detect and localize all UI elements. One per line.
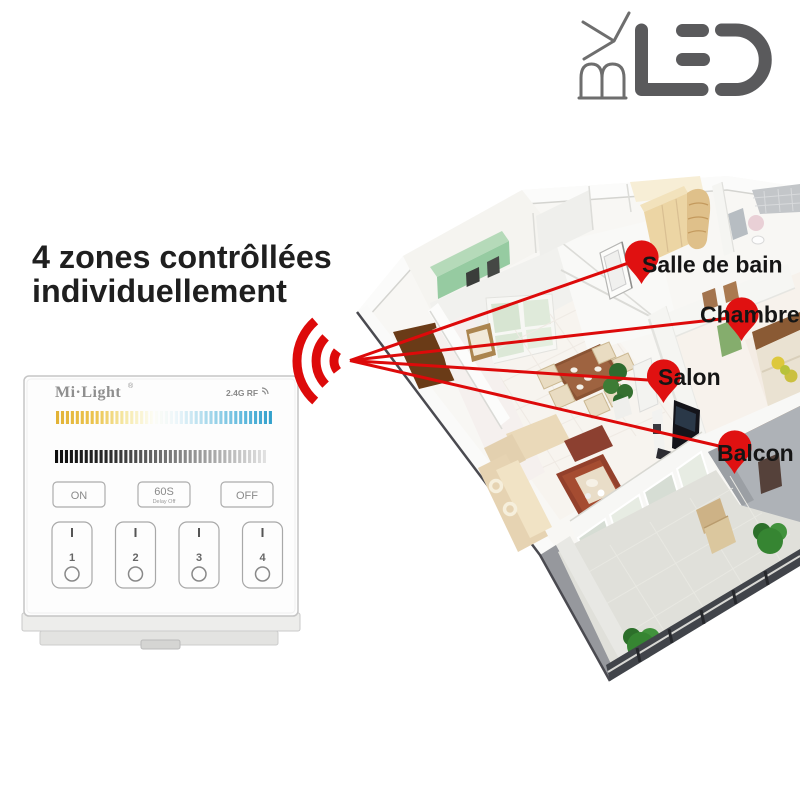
svg-text:4: 4 <box>259 552 266 564</box>
svg-text:ON: ON <box>71 490 88 502</box>
svg-text:Salle de bain: Salle de bain <box>642 252 783 278</box>
svg-text:1: 1 <box>69 552 75 564</box>
svg-text:2: 2 <box>132 552 138 564</box>
svg-text:Delay Off: Delay Off <box>153 499 176 505</box>
svg-text:individuellement: individuellement <box>32 273 287 309</box>
svg-text:Chambre: Chambre <box>700 302 800 328</box>
svg-text:Balcon: Balcon <box>717 440 794 466</box>
svg-text:OFF: OFF <box>236 490 258 502</box>
svg-text:®: ® <box>128 382 134 390</box>
svg-text:2.4G RF: 2.4G RF <box>226 388 258 398</box>
svg-text:60S: 60S <box>154 486 174 498</box>
svg-text:Salon: Salon <box>658 364 721 390</box>
svg-text:4 zones contrôllées: 4 zones contrôllées <box>32 239 332 275</box>
svg-text:Mi·Light: Mi·Light <box>55 384 121 401</box>
svg-text:3: 3 <box>196 552 202 564</box>
